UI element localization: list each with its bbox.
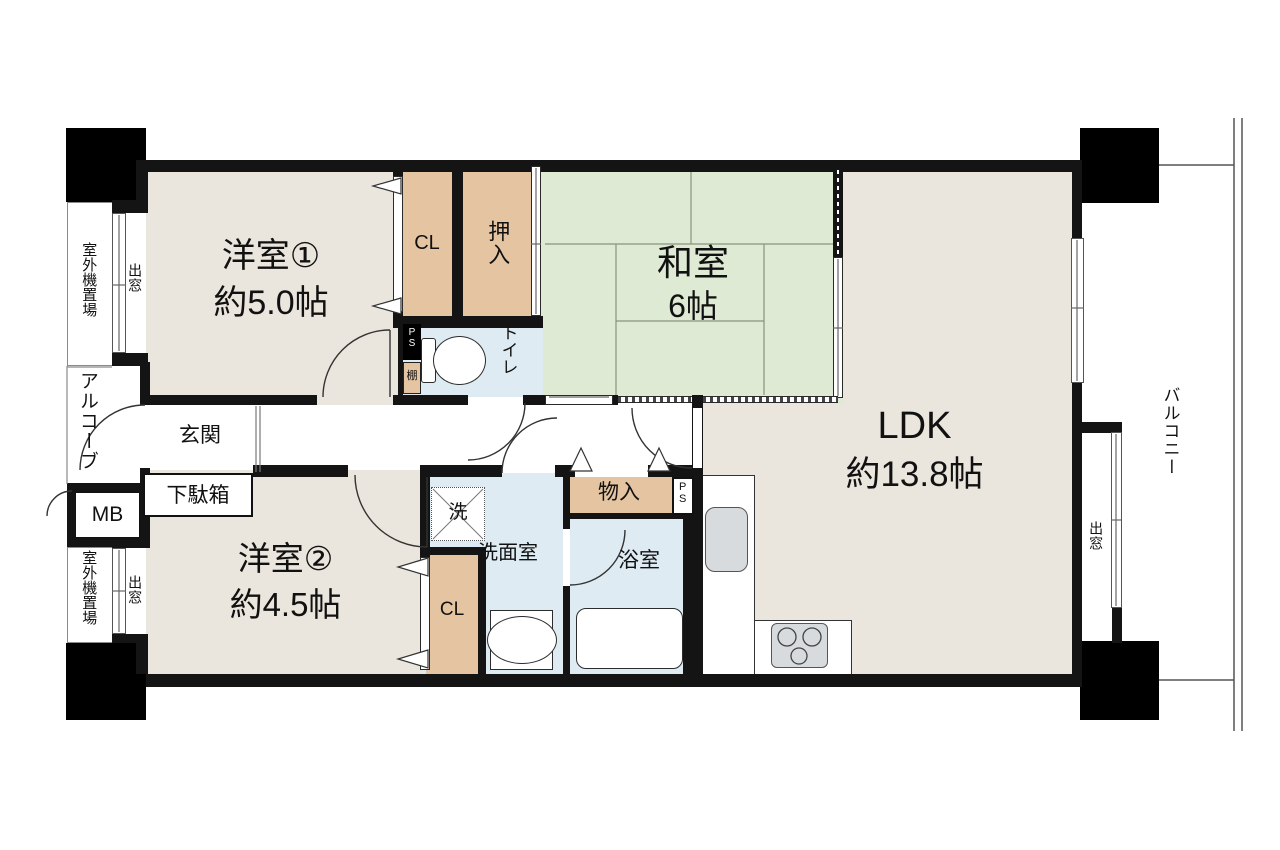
label-bay-window-right: 出窓 — [1088, 521, 1104, 551]
room-washitsu — [540, 166, 843, 403]
wall-bottom — [146, 674, 1082, 687]
label-senmenshitsu: 洗面室 — [458, 542, 558, 565]
room-label-yoshitsu1: 洋室① — [146, 237, 396, 276]
pillar-bottom-left — [66, 643, 146, 720]
room-label-ldk: LDK — [792, 405, 1037, 449]
room-size-yoshitsu1: 約5.0帖 — [146, 284, 396, 323]
ldk-door-opening — [693, 408, 702, 468]
wall-segment — [523, 395, 545, 405]
toilet-bowl-icon — [433, 336, 486, 385]
bay-window-left-top — [112, 213, 126, 353]
wall-segment — [420, 465, 430, 557]
oshiire-sliding-door — [531, 166, 541, 316]
wall-segment — [67, 492, 75, 538]
genkan-step-line — [256, 406, 260, 472]
label-balcony: バルコニー — [1160, 386, 1180, 476]
label-cl2: CL — [427, 599, 477, 621]
pillar-top-left — [66, 128, 146, 202]
bay-window-right — [1111, 432, 1122, 608]
label-bathroom: 浴室 — [594, 549, 684, 573]
floor-plan: 洋室① 約5.0帖 和室 6帖 LDK 約13.8帖 洋室② 約4.5帖 玄関 … — [0, 0, 1280, 850]
open-boundary-hall — [618, 396, 692, 403]
room-size-yoshitsu2: 約4.5帖 — [158, 586, 413, 624]
label-outdoor-unit-bottom: 室外機置場 — [80, 550, 97, 625]
wall-dashed-track — [837, 170, 839, 255]
bay-window-left-bottom — [112, 548, 126, 634]
room-label-washitsu: 和室 — [558, 242, 828, 283]
washitsu-hall-sliding-door — [545, 395, 613, 405]
label-bay-window-left-top: 出窓 — [127, 263, 143, 293]
balcony-window — [1071, 238, 1084, 383]
wall-segment — [112, 539, 148, 548]
label-monoire: 物入 — [566, 481, 672, 505]
bathtub-icon — [576, 608, 683, 669]
label-toilet: トイレ — [498, 324, 518, 375]
label-washer: 洗 — [432, 502, 484, 524]
pillar-bottom-right — [1080, 641, 1159, 720]
wall-segment — [478, 553, 486, 674]
washitsu-ldk-sliding-door — [833, 257, 843, 398]
label-getabako: 下駄箱 — [143, 484, 253, 508]
wall-segment — [425, 465, 502, 477]
basin-bowl-icon — [487, 616, 557, 664]
open-boundary-ldk — [703, 396, 838, 403]
room-size-washitsu: 6帖 — [558, 288, 828, 325]
wall-segment — [136, 634, 148, 674]
kitchen-counter — [703, 475, 755, 674]
label-oshiire: 押入 — [485, 220, 510, 266]
wall-segment — [393, 395, 468, 405]
label-shelf: 棚 — [403, 370, 421, 383]
label-meter-box: MB — [75, 503, 140, 527]
label-alcove: アルコーブ — [76, 371, 98, 471]
wall-segment — [683, 513, 692, 674]
label-bay-window-left-bottom: 出窓 — [127, 575, 143, 605]
label-cl1: CL — [396, 232, 458, 255]
wall-segment — [112, 200, 148, 213]
stove-icon — [771, 623, 828, 668]
wall-segment — [146, 395, 317, 405]
label-genkan: 玄関 — [146, 424, 254, 448]
wall-segment — [1112, 608, 1122, 643]
wall-top — [146, 160, 1082, 172]
room-label-yoshitsu2: 洋室② — [158, 540, 413, 578]
bath-door-opening — [563, 529, 570, 586]
wall-segment — [253, 465, 348, 477]
pillar-top-right — [1080, 128, 1159, 203]
wall-segment — [67, 483, 148, 492]
label-ps-bottom: PS — [676, 481, 689, 505]
label-ps-top: PS — [406, 327, 418, 349]
label-outdoor-unit-top: 室外機置場 — [80, 242, 97, 317]
room-size-ldk: 約13.8帖 — [792, 455, 1037, 495]
kitchen-sink-icon — [705, 507, 748, 572]
